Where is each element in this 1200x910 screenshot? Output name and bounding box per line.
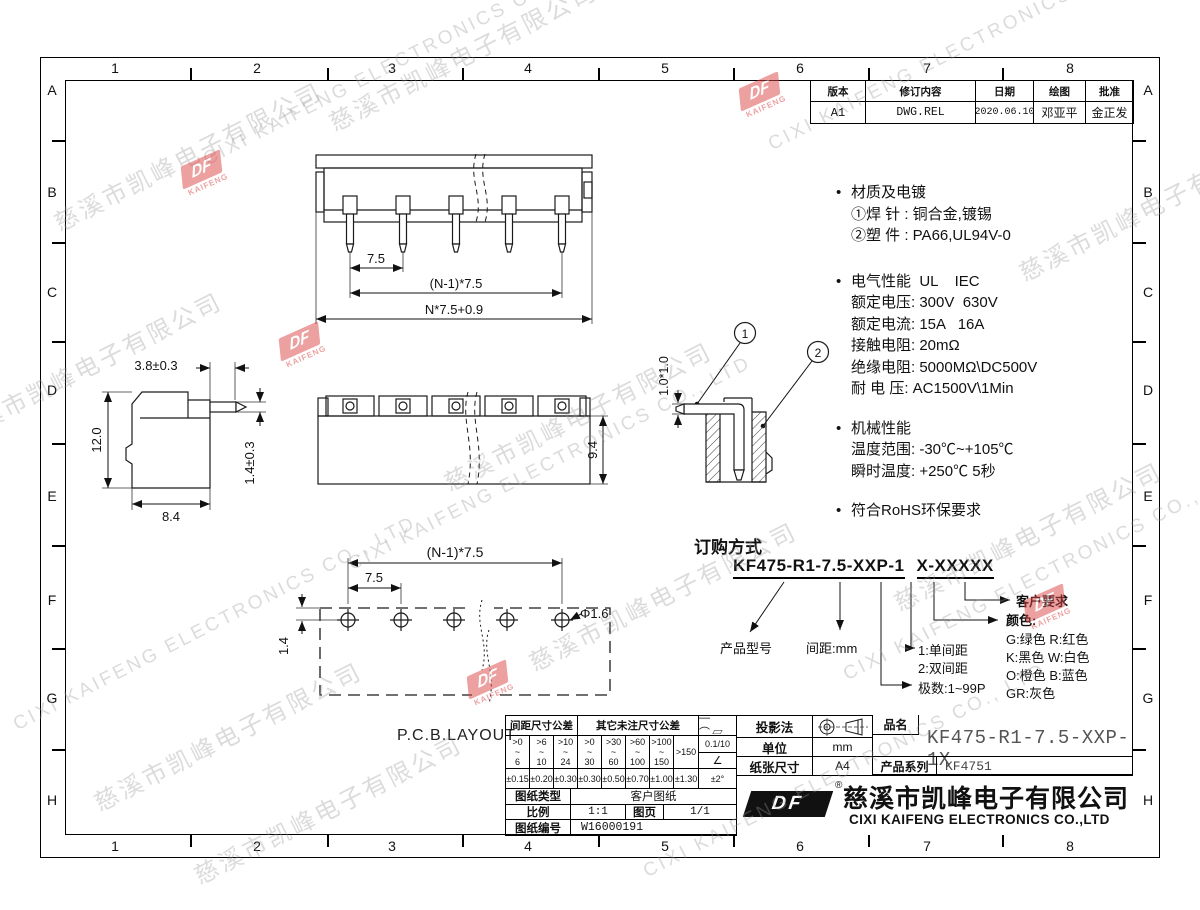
revision-approved-by: 金正发 [1086, 102, 1134, 124]
pcb-layout-drawing: (N-1)*7.5 7.5 1.4 Φ1.6 [276, 542, 634, 742]
projection-block: 投影法 单位 mm 纸张尺寸 A4 [736, 715, 873, 776]
front-view-drawing: 9.4 [312, 390, 622, 498]
kaifeng-logo: DF [743, 791, 833, 817]
tolerance-header-other: 其它未注尺寸公差 [578, 716, 699, 736]
revision-date: 2020.06.10 [976, 102, 1034, 124]
dim-3-8: 3.8±0.3 [134, 358, 177, 373]
ordering-label-double-row: 2:双间距 [918, 658, 968, 677]
ordering-label-color-title: 颜色: [1006, 610, 1036, 629]
dim-1-0: 1.0*1.0 [657, 356, 671, 396]
projection-label: 投影法 [737, 716, 813, 738]
company-block: DF ® 慈溪市凯峰电子有限公司 CIXI KAIFENG ELECTRONIC… [736, 775, 1133, 835]
revision-version: A1 [811, 102, 866, 124]
company-name-cn: 慈溪市凯峰电子有限公司 [843, 779, 1129, 815]
ordering-label-model: 产品型号 [720, 638, 772, 657]
projection-symbol [813, 716, 873, 738]
drawing-number-label: 图纸编号 [506, 820, 571, 836]
drawing-sheet: 1 2 3 4 5 6 7 8 1 2 3 4 5 6 7 8 A B C D … [0, 0, 1200, 910]
sheet-info-table: 图纸类型 客户图纸 比例 1:1 图页 1/1 图纸编号 W16000191 [505, 788, 737, 836]
scale-value: 1:1 [571, 805, 626, 821]
ordering-label-pitch: 间距:mm [806, 638, 857, 657]
dim-12: 12.0 [89, 427, 104, 452]
unit-label: 单位 [737, 738, 813, 757]
ordering-label-single-row: 1:单间距 [918, 640, 968, 659]
side-view-drawing: 3.8±0.3 12.0 1.4±0.3 8.4 [88, 348, 280, 526]
product-series-value: KF4751 [937, 757, 1133, 775]
revision-drawn-by: 邓亚平 [1034, 102, 1086, 124]
spec-section-title: 材质及电镀 [851, 182, 926, 204]
part-number-suffix: X-XXXXX [917, 556, 994, 579]
flatness-tolerance: 0.1/10 [699, 737, 736, 753]
ordering-label-poles: 极数:1~99P [918, 678, 986, 697]
dim-total-width: N*7.5+0.9 [425, 302, 483, 317]
revision-content: DWG.REL [866, 102, 976, 124]
drawing-type-value: 客户图纸 [571, 789, 737, 805]
ordering-color-option: G:绿色 R:红色 [1006, 629, 1088, 648]
slot [326, 396, 586, 416]
dim-1-4-03: 1.4±0.3 [242, 441, 257, 484]
sheet-value: 1/1 [664, 805, 737, 821]
part-number-main: KF475-R1-7.5-XXP-1 [733, 556, 905, 579]
drawing-number-value: W16000191 [571, 820, 737, 836]
angle-tolerance: ±2° [699, 769, 737, 789]
pin [343, 196, 569, 252]
dim-n-minus-1: (N-1)*7.5 [430, 276, 483, 291]
pcb-layout-label: P.C.B.LAYOUT [397, 727, 516, 745]
dim-8-4: 8.4 [162, 509, 180, 524]
sheet-label: 图页 [626, 805, 664, 821]
tolerance-value: ±0.15 [506, 769, 530, 789]
tolerance-table: 间距尺寸公差 其它未注尺寸公差 —⌒▱ >0~6 >6~10 >10~24 >0… [505, 715, 737, 789]
ordering-title: 订购方式 [694, 533, 762, 558]
dim-pcb-pitch: 7.5 [365, 570, 383, 585]
callout-1: 1 [742, 327, 749, 341]
company-name-en: CIXI KAIFENG ELECTRONICS CO.,LTD [849, 812, 1110, 827]
dim-pitch: 7.5 [367, 251, 385, 266]
drawing-type-label: 图纸类型 [506, 789, 571, 805]
zone-row: A [42, 82, 62, 98]
unit-value: mm [813, 738, 873, 757]
revision-table: 版本 修订内容 日期 绘图 批准 A1 DWG.REL 2020.06.10 邓… [810, 80, 1134, 124]
tolerance-header-pitch: 间距尺寸公差 [506, 716, 578, 736]
dim-pcb-1-4: 1.4 [276, 637, 291, 655]
zone-col: 1 [105, 60, 125, 76]
paper-size-label: 纸张尺寸 [737, 757, 813, 776]
tolerance-range-last: >150 [674, 736, 699, 769]
product-name-block: 品名 KF475-R1-7.5-XXP-1X 产品系列 KF4751 [872, 715, 1133, 775]
dim-pcb-n-minus-1: (N-1)*7.5 [427, 544, 484, 560]
top-view-drawing: 7.5 (N-1)*7.5 N*7.5+0.9 [310, 152, 598, 330]
spec-notes: •材质及电镀 ①焊 针 : 铜合金,镀锡 ②塑 件 : PA66,UL94V-0… [836, 182, 1138, 522]
dim-hole-diameter: Φ1.6 [580, 606, 608, 621]
ordering-part-number: KF475-R1-7.5-XXP-1X-XXXXX [733, 556, 994, 576]
dim-9-4: 9.4 [585, 441, 600, 459]
section-view-drawing: 1 2 1.0*1.0 [640, 312, 858, 506]
ordering-label-customer: 客户要求 [1016, 591, 1068, 610]
paper-size-value: A4 [813, 757, 873, 776]
scale-label: 比例 [506, 805, 571, 821]
angle-symbol: ∠ [699, 753, 736, 768]
geometry-symbols: —⌒▱ [699, 716, 737, 736]
product-series-label: 产品系列 [873, 757, 937, 775]
callout-2: 2 [815, 346, 822, 360]
product-name-label: 品名 [873, 715, 919, 735]
pcb-hole [337, 609, 573, 631]
registered-mark: ® [835, 780, 842, 791]
revision-header: 版本 [811, 81, 866, 102]
